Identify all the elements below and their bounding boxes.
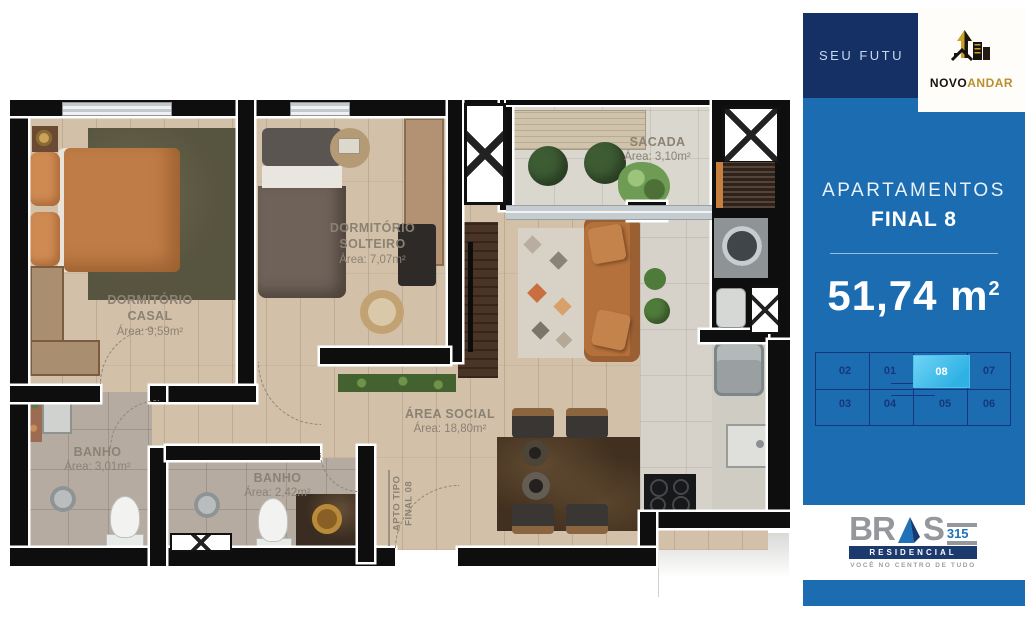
shaft-hatch-small [750, 286, 780, 334]
place-setting [522, 440, 548, 466]
plant-bed-strip [338, 374, 456, 392]
room-name: ÁREA SOCIAL [385, 406, 515, 422]
tv-panel [458, 222, 498, 378]
brs-residencial-bar: RESIDENCIAL [849, 546, 977, 559]
label-apto-tipo: APTO TIPO FINAL 08 [392, 448, 417, 558]
burner [673, 479, 689, 495]
rug-hex [523, 235, 541, 253]
shaft-hatch-top [722, 106, 780, 164]
room-area: Área: 7,07m² [305, 253, 440, 268]
wall-solteiro-bottom [320, 348, 450, 364]
brs-text-right: S [923, 512, 944, 545]
place-setting [522, 472, 550, 500]
rug-hex [549, 251, 567, 269]
bottom-bar [803, 580, 1025, 606]
panel-divider [830, 253, 998, 254]
plate-divider-v [869, 353, 870, 425]
wall-kitchen-right [768, 340, 790, 516]
room-name: SOLTEIRO [305, 236, 440, 252]
fridge [714, 342, 764, 396]
washer-drum [722, 226, 762, 266]
window-solteiro [290, 102, 350, 116]
dining-chair [566, 408, 608, 438]
rug-hex [531, 321, 549, 339]
unit-03[interactable]: 03 [828, 398, 862, 410]
rug-hex [553, 297, 571, 315]
dining-chair [566, 504, 608, 534]
wardrobe-casal-2 [30, 340, 100, 376]
novoandar-text-gold: ANDAR [967, 76, 1013, 90]
room-name: CASAL [80, 308, 220, 324]
novoandar-mark-icon [946, 28, 998, 72]
apto-line-1: APTO TIPO [392, 448, 404, 558]
burner [650, 497, 666, 513]
wall-casal-bottom-right [155, 386, 256, 402]
toilet-2-bowl [258, 498, 288, 542]
gold-sink [312, 504, 342, 534]
unit-04[interactable]: 04 [873, 398, 907, 410]
floor-plan: DORMITÓRIO CASAL Área: 9,59m² DORMITÓRIO… [0, 0, 800, 630]
banner-text: SEU FUTU [803, 13, 920, 98]
label-banho-1: BANHO Área: 3,01m² [40, 444, 155, 475]
rug-hex [527, 283, 547, 303]
label-dormitorio-casal: DORMITÓRIO CASAL Área: 9,59m² [80, 292, 220, 339]
wall-casal-right [238, 100, 254, 392]
bath-sink-1 [42, 398, 72, 434]
label-sacada: SACADA Área: 3,10m² [600, 134, 715, 165]
book [338, 138, 360, 154]
plant-small-1 [644, 268, 666, 290]
plant-small-2 [644, 298, 670, 324]
wall-left [10, 100, 28, 566]
faucet [756, 440, 764, 448]
brs-number: 315 [947, 527, 969, 541]
bed-casal [58, 148, 180, 272]
burner [650, 479, 668, 497]
floorplate-selector: 08 02 01 07 03 04 05 06 [815, 352, 1011, 426]
wall-banho2-right [358, 446, 374, 562]
unit-02[interactable]: 02 [828, 365, 862, 377]
pillow-casal-1 [30, 152, 60, 206]
wall-kitchen-bottom [640, 512, 790, 528]
window-casal [62, 102, 172, 116]
sliding-door-sacada [506, 205, 712, 220]
wall-banho2-top [166, 446, 320, 460]
room-name: DORMITÓRIO [80, 292, 220, 308]
area-number: 51,74 m [827, 272, 988, 319]
panel-title: APARTAMENTOS [803, 180, 1025, 202]
brs-text-left: BR [849, 512, 895, 545]
room-area: Área: 9,59m² [80, 325, 220, 340]
sacada-railing [506, 100, 714, 105]
shower-head-1 [50, 486, 76, 512]
room-area: Área: 3,10m² [600, 150, 715, 165]
lamp [36, 130, 52, 146]
dining-chair [512, 408, 554, 438]
plate-notch [891, 395, 935, 396]
unit-01[interactable]: 01 [873, 365, 907, 377]
dining-chair [512, 504, 554, 534]
label-banho-2: BANHO Área: 2,42m² [215, 470, 340, 501]
label-dormitorio-solteiro: DORMITÓRIO SOLTEIRO Área: 7,07m² [305, 220, 440, 267]
room-area: Área: 18,80m² [385, 422, 515, 437]
unit-05[interactable]: 05 [928, 398, 962, 410]
brs-tagline: VOCÊ NO CENTRO DE TUDO [813, 562, 1013, 569]
toilet-1-bowl [110, 496, 140, 538]
sofa-cushion-1 [587, 223, 627, 264]
chair-rattan [360, 290, 404, 334]
room-area: Área: 2,42m² [215, 486, 340, 501]
tv [468, 242, 473, 352]
page: DORMITÓRIO CASAL Área: 9,59m² DORMITÓRIO… [0, 0, 1035, 630]
mosaic-strip [28, 396, 42, 442]
brs-arrow-icon [896, 515, 922, 545]
rug-hex [556, 332, 573, 349]
wall-solteiro-right [448, 100, 462, 362]
room-name: SACADA [600, 134, 715, 150]
entrance-jamb [388, 470, 390, 546]
room-area: Área: 3,01m² [40, 460, 155, 475]
brs-315-block: 315 [947, 523, 977, 545]
shower-threshold-hatch [170, 533, 232, 552]
label-area-social: ÁREA SOCIAL Área: 18,80m² [385, 406, 515, 437]
water-heater [716, 288, 746, 328]
room-name: BANHO [40, 444, 155, 460]
unit-08-selected[interactable]: 08 [914, 356, 969, 387]
sheet-solteiro [262, 166, 342, 188]
novoandar-text-dark: NOVO [930, 76, 967, 90]
panel-area-value: 51,74 m2 [803, 272, 1025, 320]
wall-bottom-right [458, 548, 656, 566]
unit-06[interactable]: 06 [972, 398, 1006, 410]
wall-casal-bottom-left [10, 386, 100, 402]
brs-brand: BR S 315 RESIDENCIAL VOCÊ NO CENTRO DE T… [813, 512, 1013, 569]
brs-residencial-text: RESIDENCIAL [869, 548, 956, 557]
ac-condenser [716, 162, 775, 208]
duct-shaft-hatch [464, 103, 506, 205]
room-name: DORMITÓRIO [305, 220, 440, 236]
rug-living [518, 228, 588, 358]
cooktop [644, 474, 696, 514]
sacada-plant-1 [528, 146, 568, 186]
pillow-casal-2 [30, 212, 60, 266]
room-name: BANHO [215, 470, 340, 486]
area-exponent: 2 [989, 278, 1001, 300]
novoandar-logo-card: NOVOANDAR [918, 8, 1025, 112]
panel-subtitle: FINAL 8 [803, 208, 1025, 232]
apto-line-2: FINAL 08 [404, 448, 416, 558]
novoandar-wordmark: NOVOANDAR [930, 74, 1013, 92]
unit-07[interactable]: 07 [972, 365, 1006, 377]
